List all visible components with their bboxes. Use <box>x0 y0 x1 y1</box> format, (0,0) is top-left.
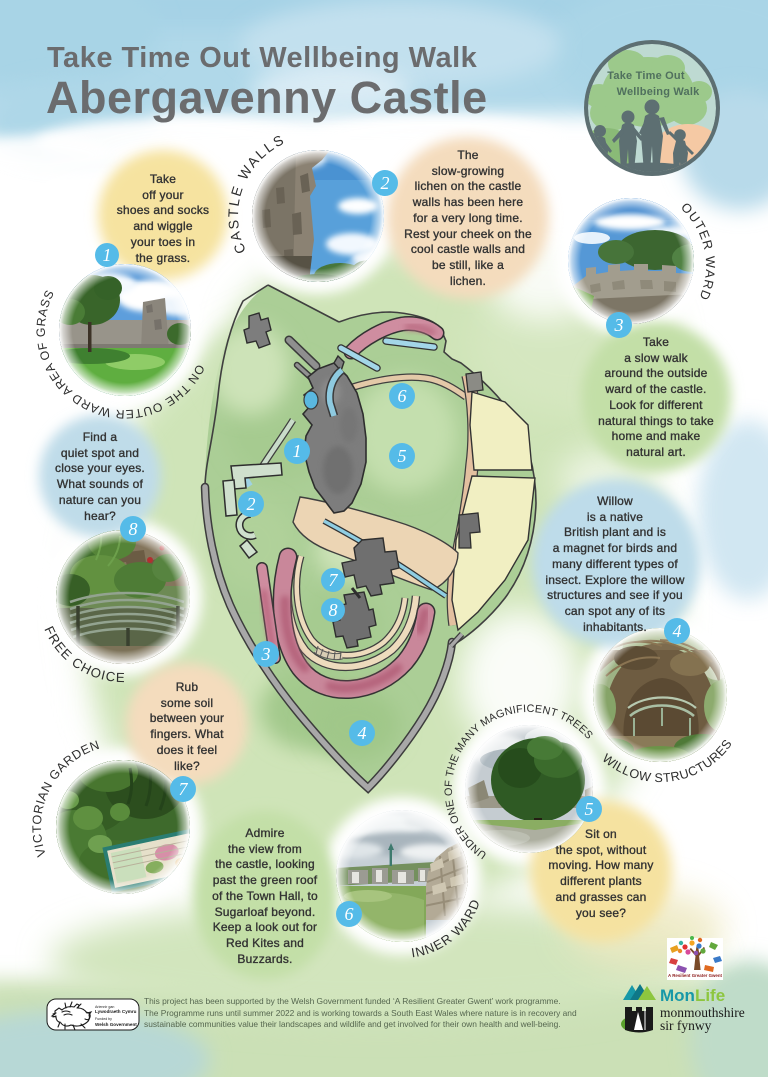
svg-text:sir fynwy: sir fynwy <box>660 1018 712 1033</box>
svg-text:Take Time Out: Take Time Out <box>607 70 685 82</box>
svg-text:8: 8 <box>329 600 338 620</box>
svg-text:Funded by: Funded by <box>95 1017 112 1021</box>
svg-text:Lywodraeth Cymru: Lywodraeth Cymru <box>95 1009 137 1014</box>
svg-text:4: 4 <box>358 723 367 743</box>
svg-text:7: 7 <box>179 779 189 799</box>
svg-text:2: 2 <box>247 494 256 514</box>
svg-text:5: 5 <box>398 446 407 466</box>
svg-text:5: 5 <box>585 799 594 819</box>
svg-text:6: 6 <box>398 386 407 406</box>
svg-text:1: 1 <box>293 441 302 461</box>
svg-text:Welsh Government: Welsh Government <box>95 1022 137 1027</box>
svg-text:MonLife: MonLife <box>660 986 725 1005</box>
svg-text:3: 3 <box>614 315 624 335</box>
svg-text:A Resilient Greater Gwent: A Resilient Greater Gwent <box>668 973 723 978</box>
svg-text:Wellbeing Walk: Wellbeing Walk <box>617 86 701 98</box>
svg-text:7: 7 <box>329 570 339 590</box>
svg-text:3: 3 <box>261 644 271 664</box>
